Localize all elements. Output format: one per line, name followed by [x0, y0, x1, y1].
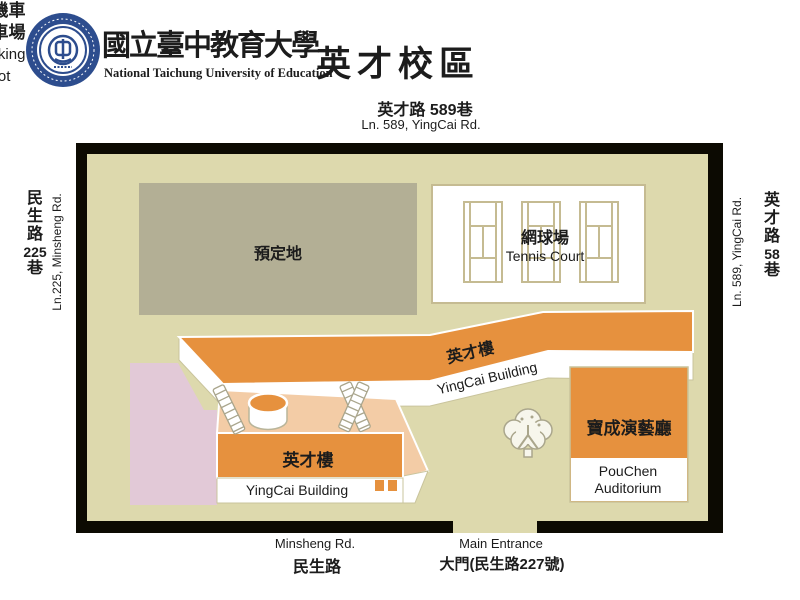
- auditorium-label-zh: 寶成演藝廳: [587, 414, 672, 439]
- wall-window: [388, 480, 397, 491]
- auditorium-label-en2: Auditorium: [595, 480, 662, 496]
- bottom-road-label-en: Minsheng Rd.: [275, 536, 355, 551]
- road-label-top-en: Ln. 589, YingCai Rd.: [361, 117, 480, 132]
- auditorium-label-en1: PouChen: [599, 463, 657, 479]
- main-entrance-label-en: Main Entrance: [459, 536, 543, 551]
- road-label-left-zh: 民 生 路 225 巷: [20, 190, 50, 278]
- main-entrance-label-zh: 大門(民生路227號): [439, 553, 564, 574]
- parking-lot-label: 汽機車 停車場 Parking Lot: [0, 0, 400, 88]
- campus-map-page: 國立臺中教育大學 National Taichung University of…: [0, 0, 800, 600]
- bottom-road-label-zh: 民生路: [293, 553, 341, 577]
- main-entrance-gap: [453, 520, 537, 533]
- lower-building-label-en: YingCai Building: [246, 482, 348, 498]
- road-label-left-en: Ln.225, Minsheng Rd.: [50, 193, 64, 310]
- tennis-court-label-zh: 網球場: [521, 224, 569, 248]
- reserved-site-label: 預定地: [254, 240, 302, 264]
- wall-window: [375, 480, 384, 491]
- water-tank-icon: [249, 394, 287, 430]
- tennis-court-label-en: Tennis Court: [506, 248, 585, 264]
- road-label-right-zh: 英 才 路 58 巷: [757, 192, 787, 280]
- road-label-right-en: Ln. 589, YingCai Rd.: [730, 197, 744, 307]
- lower-building-label-zh: 英才樓: [283, 446, 334, 471]
